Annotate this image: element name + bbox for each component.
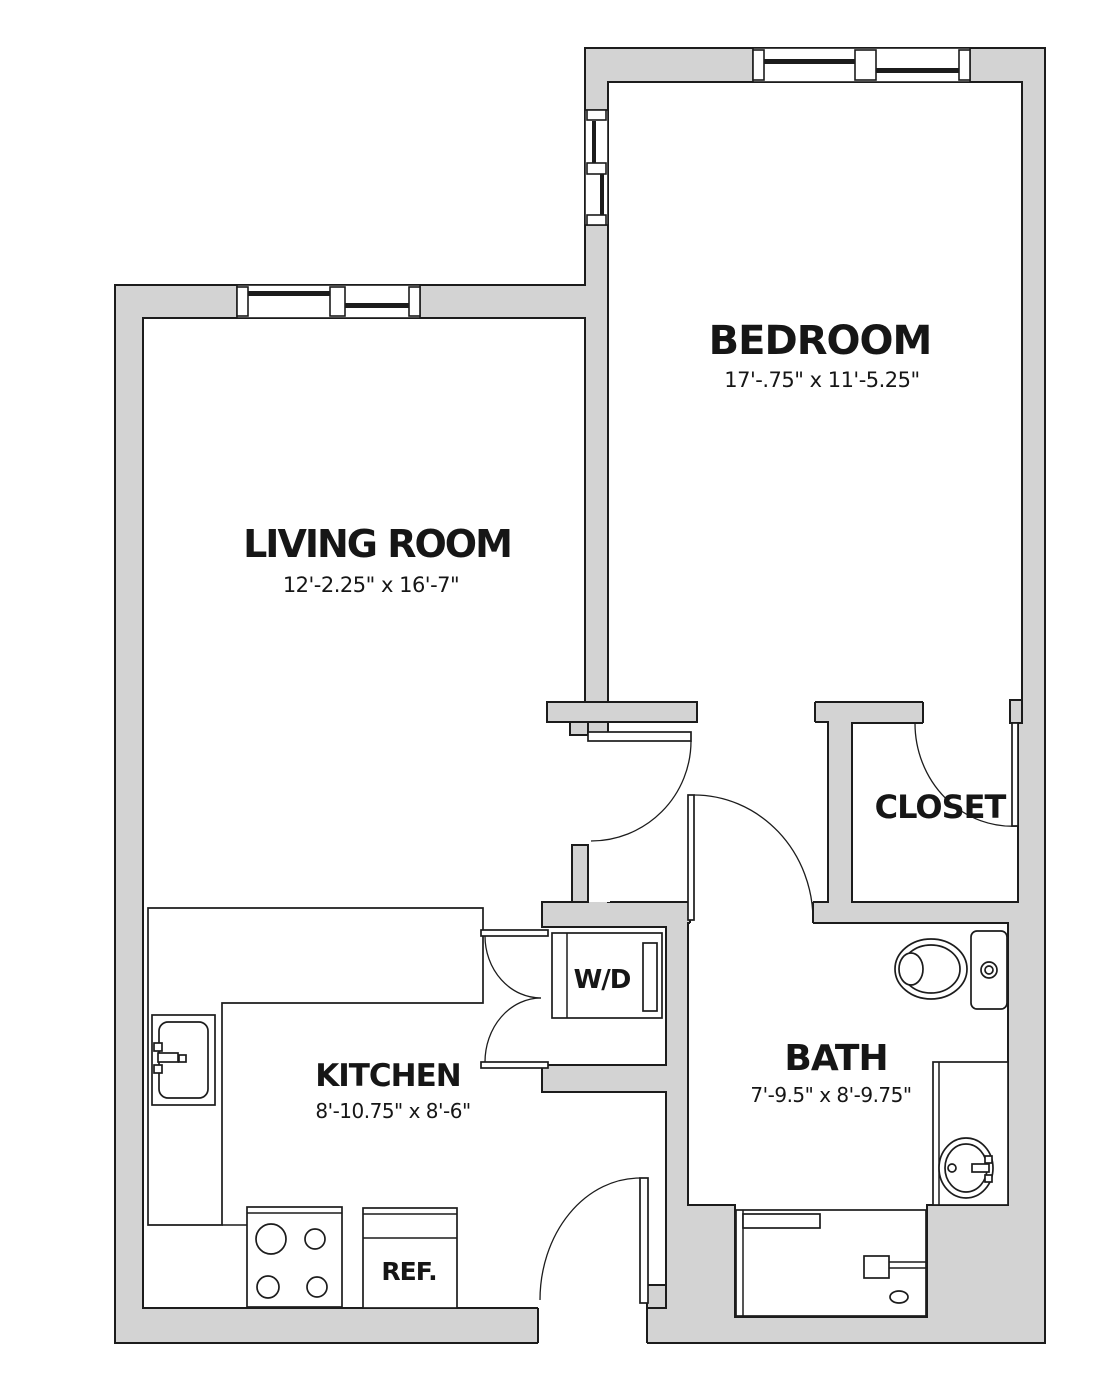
interior-wall-stub-lower xyxy=(572,845,588,902)
stove xyxy=(247,1207,342,1307)
living-room-label: LIVING ROOM xyxy=(243,522,511,566)
hall-floor xyxy=(608,722,828,902)
kitchen-dims: 8'-10.75" x 8'-6" xyxy=(315,1099,470,1123)
bath-door-opening xyxy=(690,899,813,925)
bedroom-opening xyxy=(698,699,815,725)
kitchen-label: KITCHEN xyxy=(315,1058,461,1094)
bathtub xyxy=(736,1210,926,1316)
bedroom-floor xyxy=(608,82,1022,702)
bathroom-vanity-sink xyxy=(933,1062,1008,1205)
bedroom-dims: 17'-.75" x 11'-5.25" xyxy=(724,368,919,392)
living-room-dims: 12'-2.25" x 16'-7" xyxy=(283,573,459,597)
floor-plan-svg: BEDROOM 17'-.75" x 11'-5.25" LIVING ROOM… xyxy=(0,0,1115,1380)
bedroom-label: BEDROOM xyxy=(709,318,932,364)
kitchen-sink xyxy=(152,1015,215,1105)
living-room-window xyxy=(237,285,420,318)
bedroom-left-window xyxy=(585,110,608,225)
entry-door-opening xyxy=(538,1302,647,1349)
refrigerator-label: REF. xyxy=(381,1257,436,1286)
washer-dryer-label: W/D xyxy=(574,965,631,995)
interior-wall-tbar xyxy=(547,702,697,722)
entry-door-jamb xyxy=(647,1285,666,1308)
floor-plan: BEDROOM 17'-.75" x 11'-5.25" LIVING ROOM… xyxy=(0,0,1115,1380)
closet-door-jamb xyxy=(1010,700,1022,723)
bedroom-top-window xyxy=(753,48,970,82)
interior-wall-stub-upper xyxy=(570,722,588,735)
bath-label: BATH xyxy=(784,1038,887,1079)
bath-dims: 7'-9.5" x 8'-9.75" xyxy=(750,1083,911,1107)
closet-label: CLOSET xyxy=(875,788,1007,826)
closet-door-opening xyxy=(923,699,1009,725)
